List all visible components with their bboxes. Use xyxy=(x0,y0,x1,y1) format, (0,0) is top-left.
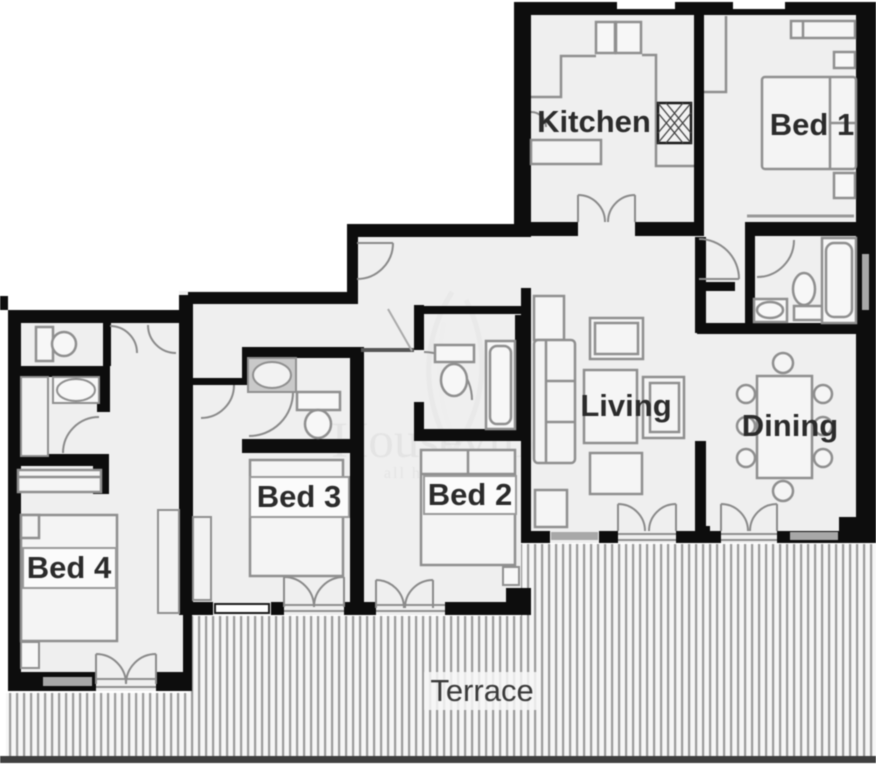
svg-text:Bed 4: Bed 4 xyxy=(27,550,112,585)
svg-text:Dining: Dining xyxy=(742,408,838,443)
svg-text:Living: Living xyxy=(580,388,671,423)
svg-text:Bed 2: Bed 2 xyxy=(428,477,512,512)
svg-text:Terrace: Terrace xyxy=(430,673,533,708)
svg-text:Bed 1: Bed 1 xyxy=(770,107,854,142)
svg-text:Bed 3: Bed 3 xyxy=(257,479,341,514)
svg-text:Kitchen: Kitchen xyxy=(537,104,651,139)
